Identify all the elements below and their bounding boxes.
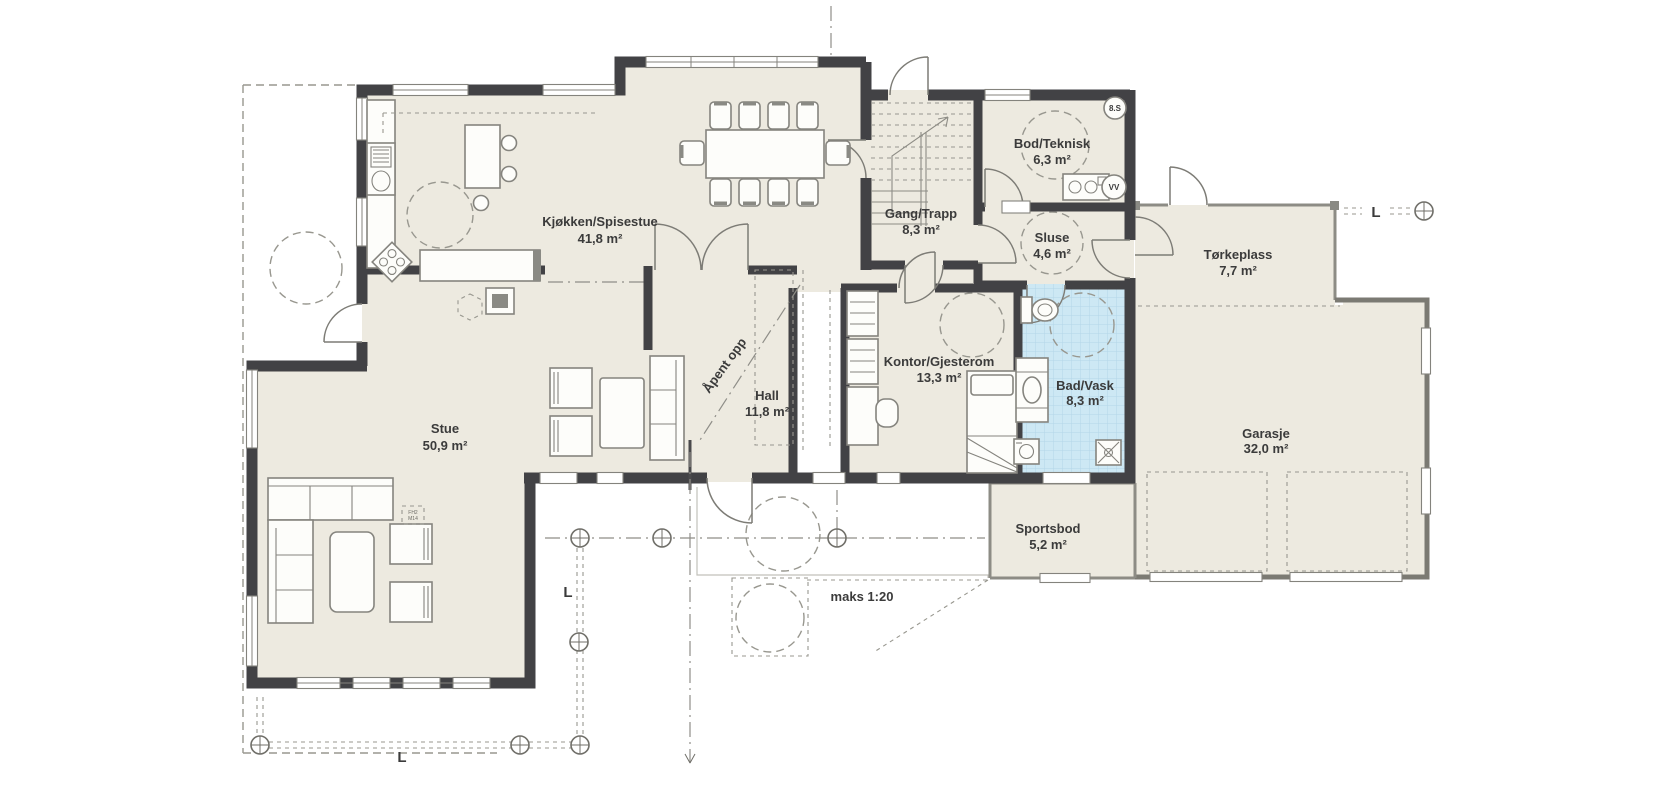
bed [967, 371, 1017, 473]
ramp-annotation [697, 487, 988, 656]
label-gang-area: 8,3 m² [902, 222, 940, 237]
label-bod: Bod/Teknisk [1014, 136, 1091, 151]
axis-label-middle: L [563, 584, 572, 601]
label-torkeplass-area: 7,7 m² [1219, 263, 1257, 278]
armchair [390, 524, 432, 564]
label-sportsbod: Sportsbod [1016, 521, 1081, 536]
label-sluse-area: 4,6 m² [1033, 246, 1071, 261]
bar-stool [502, 136, 517, 151]
grid-marker [653, 529, 671, 547]
tumble-dryer [1096, 440, 1121, 465]
label-gang: Gang/Trapp [885, 206, 957, 221]
grid-marker [1415, 202, 1433, 220]
label-sluse: Sluse [1035, 230, 1070, 245]
floor-plan-drawing: FH2 M14 Åpent opp [0, 0, 1670, 800]
grid-marker [570, 633, 588, 651]
axis-label-bottom: L [397, 749, 406, 766]
grid-marker [251, 736, 269, 754]
floor-plan-page: FH2 M14 Åpent opp [0, 0, 1670, 800]
grid-marker [571, 736, 589, 754]
furniture-code-line2: M14 [408, 516, 418, 522]
dining-table [706, 130, 824, 178]
coffee-table [330, 532, 374, 612]
label-bod-area: 6,3 m² [1033, 152, 1071, 167]
bar-stool [502, 167, 517, 182]
label-kitchen: Kjøkken/Spisestue [542, 214, 658, 229]
bookshelf [847, 291, 878, 336]
washing-machine [1014, 439, 1039, 464]
section-lines [685, 440, 695, 763]
toilet [1021, 297, 1058, 323]
desk [847, 387, 878, 445]
bookshelf [847, 339, 878, 384]
axis-label-right: L [1371, 204, 1380, 221]
label-stue-area: 50,9 m² [423, 438, 468, 453]
ramp-slope-label: maks 1:20 [831, 589, 894, 604]
label-kontor-area: 13,3 m² [917, 370, 962, 385]
kitchen-island [465, 125, 500, 188]
armchair [390, 582, 432, 622]
label-kontor: Kontor/Gjesterom [884, 354, 995, 369]
section-badge-label: 8.S [1109, 104, 1122, 113]
label-bad-area: 8,3 m² [1066, 393, 1104, 408]
kitchen-counter [420, 250, 540, 281]
armchair [550, 416, 592, 456]
grid-marker [828, 529, 846, 547]
desk-chair [876, 399, 898, 427]
side-table [600, 378, 644, 448]
grid-marker [571, 529, 589, 547]
label-hall-area: 11,8 m² [745, 404, 790, 419]
grid-marker [511, 736, 529, 754]
label-bad: Bad/Vask [1056, 378, 1115, 393]
label-torkeplass: Tørkeplass [1204, 247, 1273, 262]
bathroom-sink [1016, 358, 1048, 422]
water-heater-label: VV [1109, 183, 1120, 192]
label-garasje-area: 32,0 m² [1244, 441, 1289, 456]
label-sportsbod-area: 5,2 m² [1029, 537, 1067, 552]
sofa [650, 356, 684, 460]
label-stue: Stue [431, 421, 459, 436]
armchair [550, 368, 592, 408]
label-garasje: Garasje [1242, 426, 1290, 441]
label-kitchen-area: 41,8 m² [578, 231, 623, 246]
bar-stool [474, 196, 489, 211]
label-hall: Hall [755, 388, 779, 403]
